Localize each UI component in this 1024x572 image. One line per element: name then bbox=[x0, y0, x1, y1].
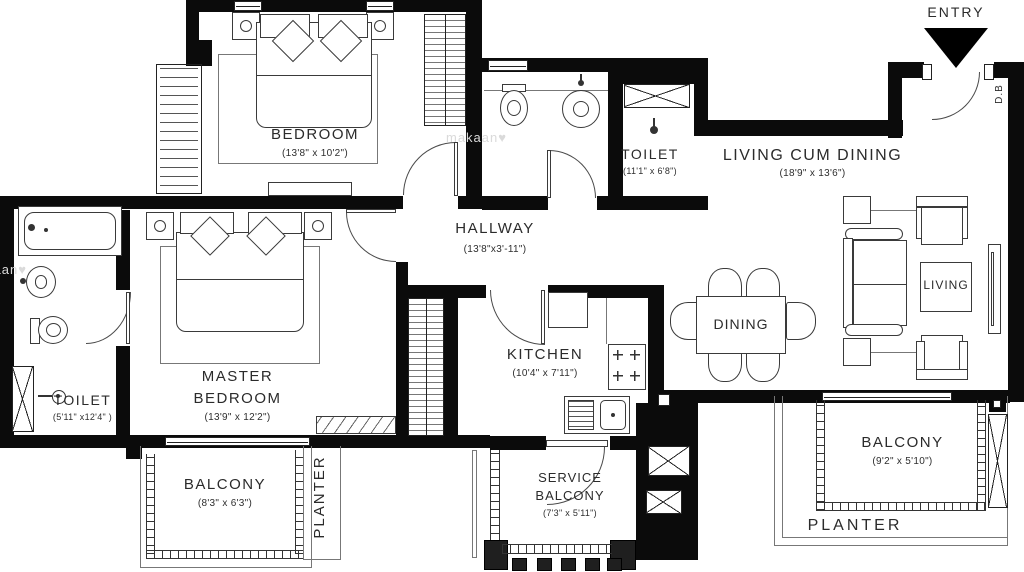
planter-box bbox=[585, 558, 600, 571]
burner-icon bbox=[630, 350, 640, 360]
wash-basin bbox=[26, 266, 56, 298]
room-name: BALCONY bbox=[840, 434, 965, 452]
wall-segment bbox=[597, 196, 708, 210]
room-name: LIVING CUM DINING bbox=[710, 146, 915, 165]
room-dims: (7'3" x 5'11") bbox=[520, 508, 620, 519]
wardrobe bbox=[408, 298, 444, 436]
room-name: MASTER bbox=[175, 368, 300, 386]
door-post bbox=[984, 64, 994, 80]
dining-label: DINING bbox=[698, 316, 784, 333]
wall-segment bbox=[444, 298, 458, 436]
room-dims: (10'4" x 7'11") bbox=[485, 368, 605, 380]
sink-drainboard bbox=[568, 400, 594, 430]
wall-segment bbox=[636, 403, 698, 560]
planter-box bbox=[512, 558, 527, 571]
side-table bbox=[843, 196, 871, 224]
duct-box bbox=[646, 490, 682, 514]
tv-panel bbox=[991, 252, 994, 326]
duct-box bbox=[648, 446, 690, 476]
planter-box bbox=[537, 558, 552, 571]
armchair-seat bbox=[921, 335, 963, 373]
dining-chair bbox=[746, 268, 780, 298]
door-leaf bbox=[346, 209, 396, 213]
balcony-window bbox=[165, 437, 310, 446]
wall-vent bbox=[658, 394, 670, 406]
bed-sheet-line bbox=[177, 279, 303, 280]
planter-box bbox=[561, 558, 576, 571]
room-name: BEDROOM bbox=[250, 126, 380, 144]
connector-line bbox=[871, 210, 916, 211]
planter-label: PLANTER bbox=[311, 439, 329, 555]
basin-tap bbox=[20, 278, 26, 284]
shower-head bbox=[650, 126, 658, 134]
room-name: KITCHEN bbox=[485, 346, 605, 364]
dining-chair bbox=[786, 302, 816, 340]
room-dims: (9'2" x 5'10") bbox=[840, 456, 965, 468]
master-door-arc bbox=[346, 212, 396, 262]
balcony-outline bbox=[472, 450, 477, 558]
sink-drain-dot bbox=[611, 413, 615, 417]
window bbox=[488, 60, 528, 71]
dining-chair bbox=[708, 352, 742, 382]
wall-segment bbox=[188, 40, 212, 66]
tub-tap bbox=[44, 228, 48, 232]
wall-segment bbox=[888, 62, 902, 138]
connector-line bbox=[871, 352, 916, 353]
armchair-seat bbox=[921, 207, 963, 245]
door-leaf bbox=[454, 142, 458, 196]
db-label: D.B bbox=[994, 68, 1006, 120]
wall-segment bbox=[458, 196, 482, 209]
side-table bbox=[843, 338, 871, 366]
wall-segment bbox=[1008, 62, 1024, 402]
room-dims: (5'11" x12'4" ) bbox=[30, 412, 135, 423]
burner-icon bbox=[630, 371, 640, 381]
wc-bowl bbox=[507, 100, 521, 116]
balcony-railing bbox=[816, 502, 986, 511]
nightstand-lamp bbox=[304, 212, 332, 240]
armchair-back bbox=[916, 369, 968, 380]
window bbox=[366, 1, 394, 11]
watermark: makaan♥ bbox=[0, 262, 27, 277]
room-dims: (13'9" x 12'2") bbox=[175, 412, 300, 424]
balcony-railing bbox=[977, 400, 986, 511]
door-leaf bbox=[126, 292, 130, 344]
balcony-railing bbox=[816, 400, 825, 510]
toilet-door-arc bbox=[549, 150, 596, 198]
sofa-armrest bbox=[845, 324, 903, 336]
nightstand-lamp bbox=[146, 212, 174, 240]
room-name: TOILET bbox=[40, 392, 125, 409]
entry-door-arc bbox=[932, 72, 980, 120]
room-dims: (13'8"x3'-11") bbox=[430, 244, 560, 256]
dresser bbox=[316, 416, 396, 434]
planter-box bbox=[607, 558, 622, 571]
counter-line bbox=[606, 298, 607, 344]
armchair-back bbox=[916, 196, 968, 207]
door-post bbox=[922, 64, 932, 80]
balcony-railing bbox=[146, 454, 155, 554]
wall-segment bbox=[466, 0, 482, 196]
wall-segment bbox=[482, 196, 548, 210]
planter-label: PLANTER bbox=[790, 516, 920, 535]
toilet-door-arc bbox=[86, 292, 131, 344]
balcony-railing bbox=[146, 550, 304, 559]
wall-segment bbox=[694, 120, 903, 136]
basin-tap-stem bbox=[580, 74, 582, 84]
room-name: BALCONY bbox=[160, 476, 290, 494]
sofa-armrest bbox=[845, 228, 903, 240]
burner-icon bbox=[613, 371, 623, 381]
ac-ledge-louver bbox=[156, 64, 202, 194]
bed bbox=[176, 232, 304, 332]
living-label: LIVING bbox=[920, 278, 972, 292]
wash-basin bbox=[562, 90, 600, 128]
room-dims: (11'1" x 6'8") bbox=[606, 166, 694, 177]
dining-chair bbox=[708, 268, 742, 298]
room-dims: (8'3" x 6'3") bbox=[160, 498, 290, 510]
sofa bbox=[853, 240, 907, 326]
wardrobe bbox=[424, 14, 466, 126]
fridge bbox=[548, 292, 588, 328]
wall-segment bbox=[648, 290, 664, 403]
wall-segment bbox=[396, 285, 486, 298]
door-leaf bbox=[546, 440, 608, 447]
entry-label: ENTRY bbox=[916, 4, 996, 21]
room-name: HALLWAY bbox=[430, 220, 560, 238]
sofa-back bbox=[843, 238, 853, 328]
window bbox=[234, 1, 262, 11]
balcony-railing bbox=[502, 544, 612, 554]
door-leaf bbox=[547, 150, 551, 198]
kitchen-door-arc bbox=[490, 290, 545, 345]
wc-bowl bbox=[46, 323, 61, 337]
room-dims: (18'9" x 13'6") bbox=[710, 168, 915, 180]
watermark: makaan♥ bbox=[446, 130, 507, 145]
console-table bbox=[268, 182, 352, 196]
bedroom-door-arc bbox=[403, 142, 456, 195]
room-name: TOILET bbox=[610, 146, 690, 163]
floor-plan: ENTRY D.B BEDROOM (13'8" x 10'2") TOILET… bbox=[0, 0, 1024, 572]
shower-box bbox=[624, 84, 690, 108]
brace-column bbox=[988, 414, 1008, 508]
entry-arrow-icon bbox=[924, 28, 988, 68]
wall-segment bbox=[490, 436, 546, 450]
room-dims: (13'8" x 10'2") bbox=[250, 148, 380, 160]
dining-chair bbox=[746, 352, 780, 382]
tv-unit bbox=[988, 244, 1001, 334]
wall-segment bbox=[186, 0, 466, 12]
bathtub-inner bbox=[24, 212, 116, 250]
wall-segment bbox=[622, 60, 694, 84]
shower-stem bbox=[653, 118, 655, 127]
room-name: SERVICE bbox=[520, 470, 620, 486]
balcony-railing bbox=[490, 450, 500, 542]
room-name: BALCONY bbox=[520, 488, 620, 504]
door-leaf bbox=[541, 290, 545, 344]
tub-tap bbox=[28, 224, 35, 231]
bed-sheet-line bbox=[257, 75, 371, 76]
room-name: BEDROOM bbox=[175, 390, 300, 408]
burner-icon bbox=[613, 350, 623, 360]
